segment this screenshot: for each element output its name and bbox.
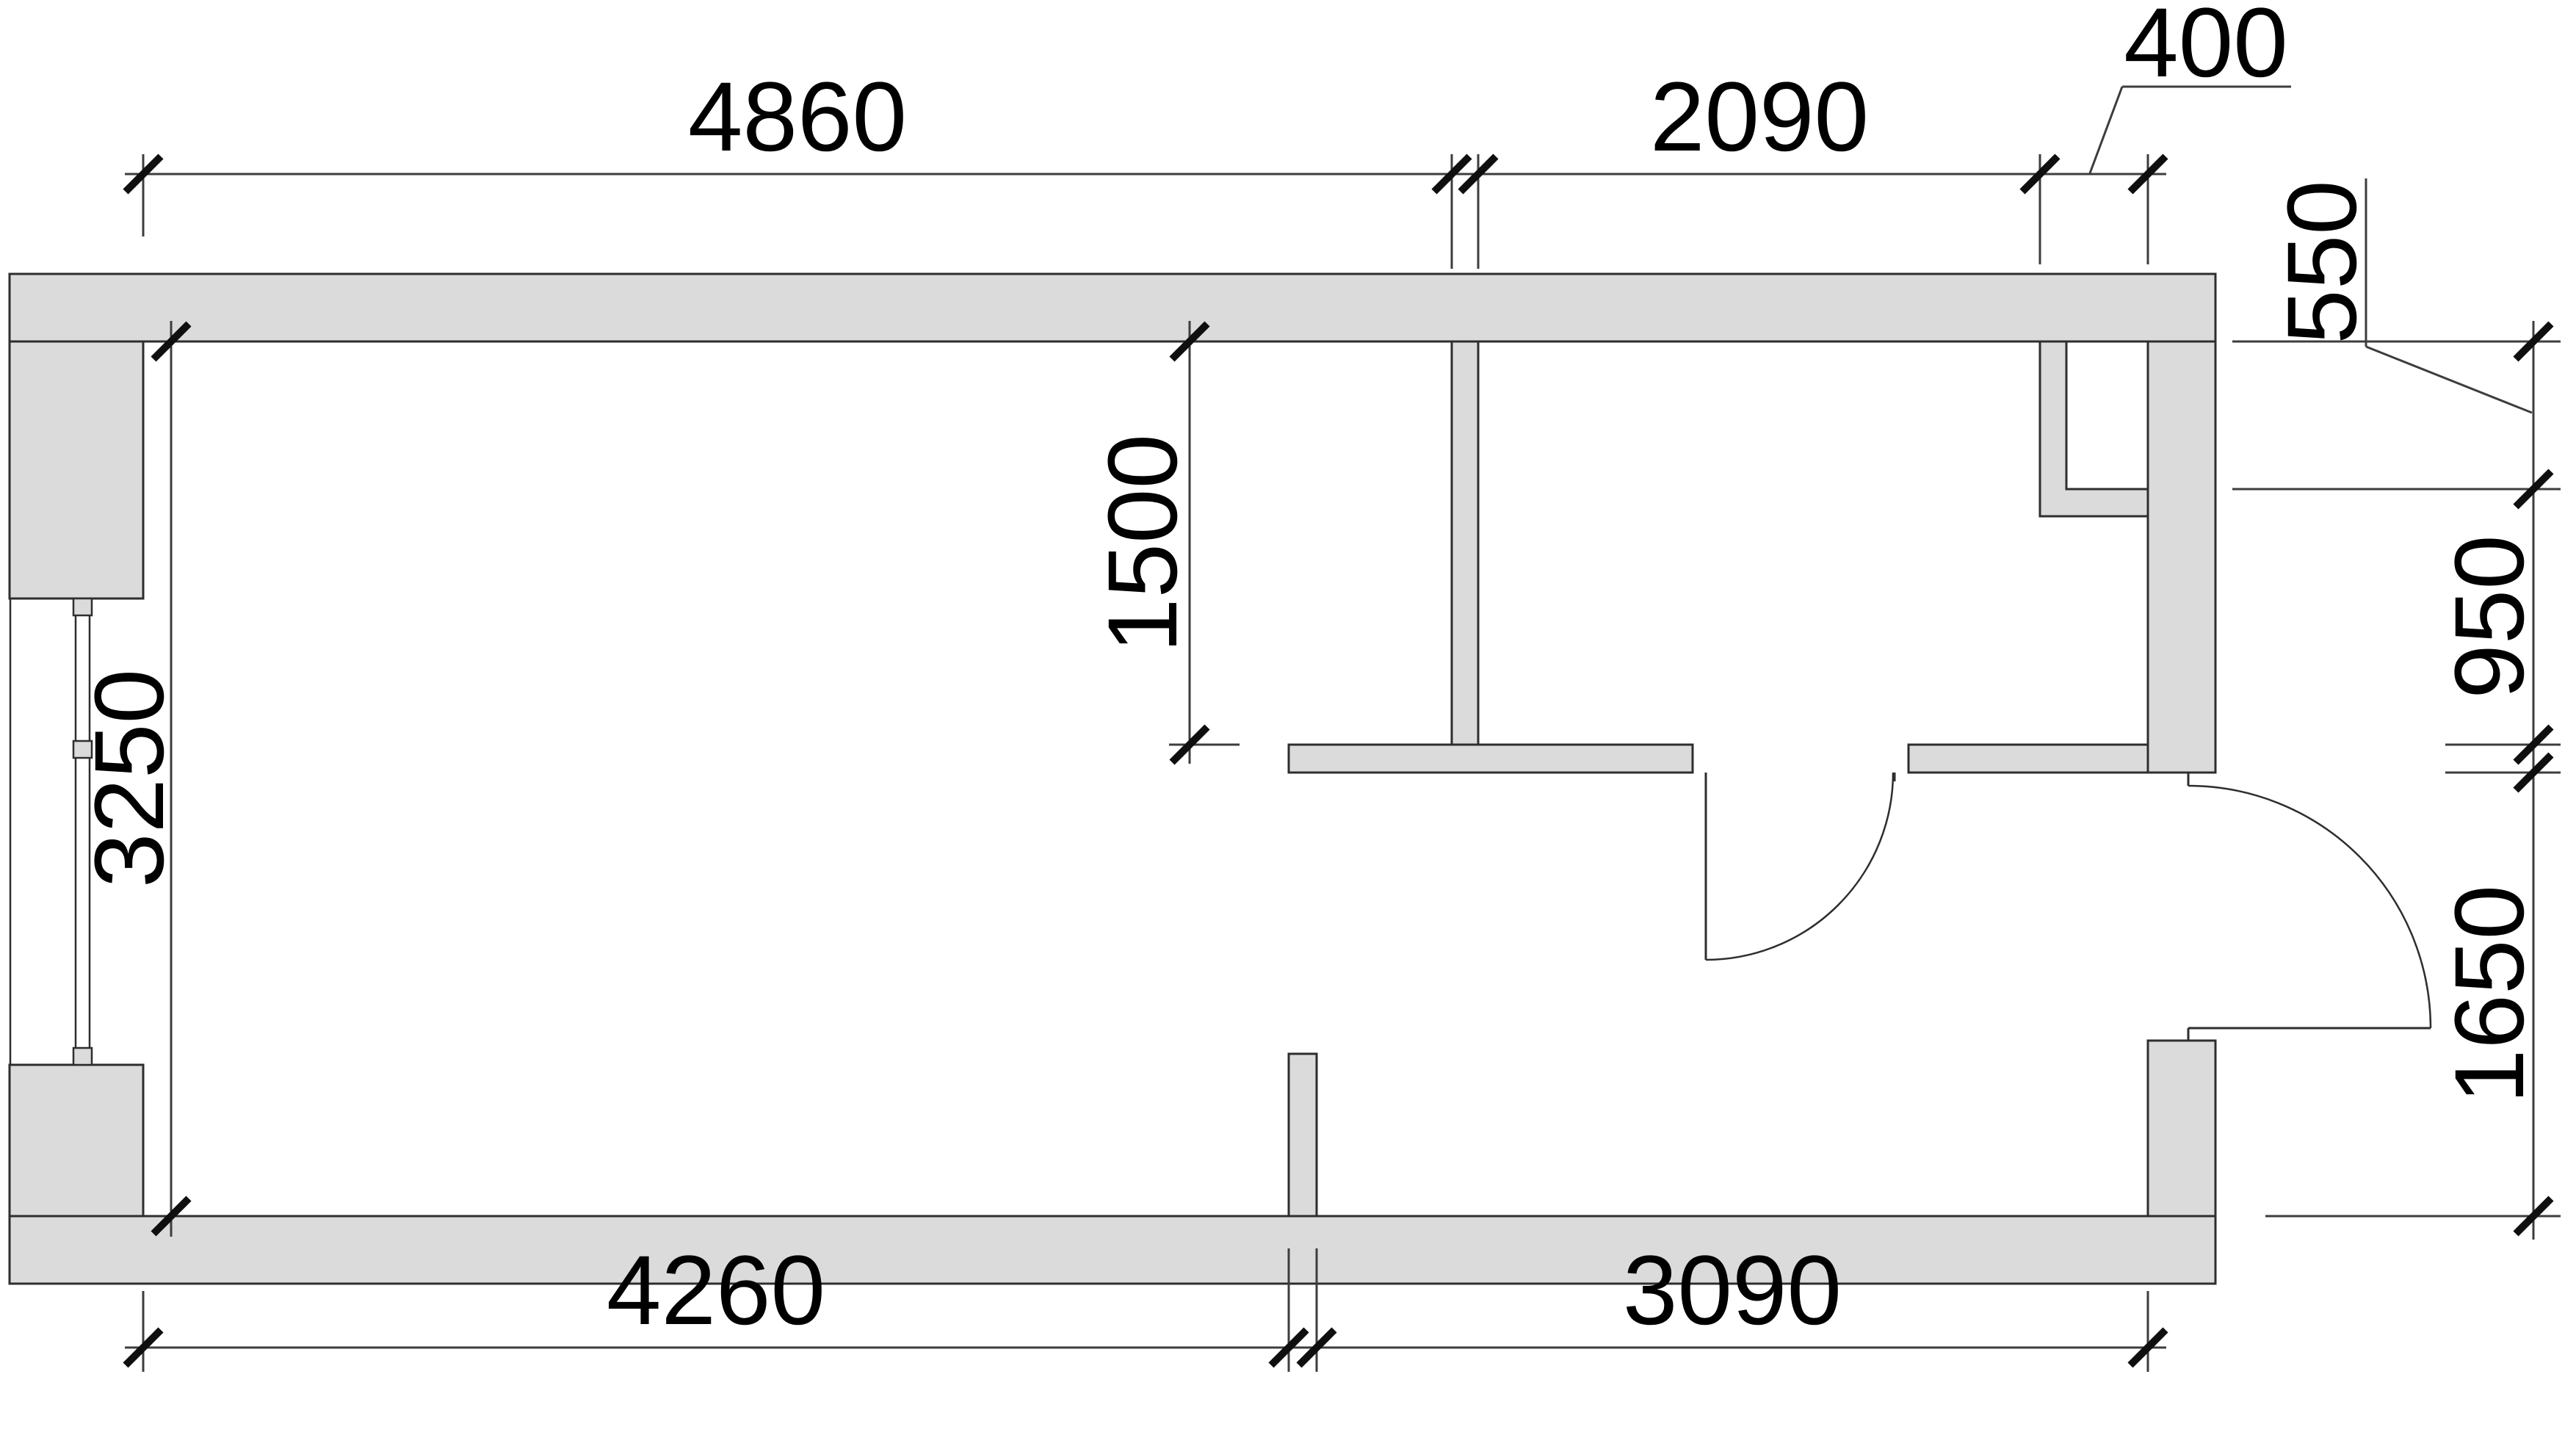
right-dim-label-950: 950 — [2435, 535, 2544, 699]
wall-top — [10, 274, 2215, 341]
floor-plan-canvas: 4860 2090 400 550 950 1650 4260 3090 325… — [0, 0, 2576, 1432]
wall-right-lower — [2148, 1041, 2215, 1216]
leader-550-line — [2366, 347, 2532, 413]
wall-left-lower-pier — [10, 1065, 143, 1216]
wall-left-upper-pier — [10, 341, 143, 599]
shaft-enclosure-wall — [2040, 341, 2148, 516]
right-dim-label-550: 550 — [2268, 180, 2377, 344]
top-dim-label-400: 400 — [2124, 0, 2288, 98]
midwall-left-segment — [1289, 745, 1693, 773]
left-dim-label-3250: 3250 — [75, 669, 184, 888]
right-dim-label-1650: 1650 — [2435, 885, 2544, 1104]
window-mullion — [73, 1048, 92, 1065]
window-mullion — [73, 599, 92, 615]
top-dim-label-4860: 4860 — [688, 62, 907, 172]
bottom-dim-label-3090: 3090 — [1623, 1236, 1842, 1345]
leader-400-line — [2090, 87, 2122, 173]
bathroom-door-swing-arc — [1706, 773, 1893, 960]
wall-bottom — [10, 1216, 2215, 1284]
partition-bathroom-wall — [1452, 341, 1478, 745]
doors-group — [1706, 773, 2431, 1041]
wall-right-upper — [2148, 341, 2215, 773]
wall-stub-bottom — [1289, 1054, 1317, 1216]
midwall-right-segment — [1909, 745, 2148, 773]
entry-door-swing-arc — [2188, 786, 2431, 1028]
top-dim-label-2090: 2090 — [1650, 62, 1869, 172]
interior-dim-label-1500: 1500 — [1088, 434, 1198, 653]
bottom-dim-label-4260: 4260 — [607, 1236, 825, 1345]
walls-group — [10, 274, 2215, 1284]
